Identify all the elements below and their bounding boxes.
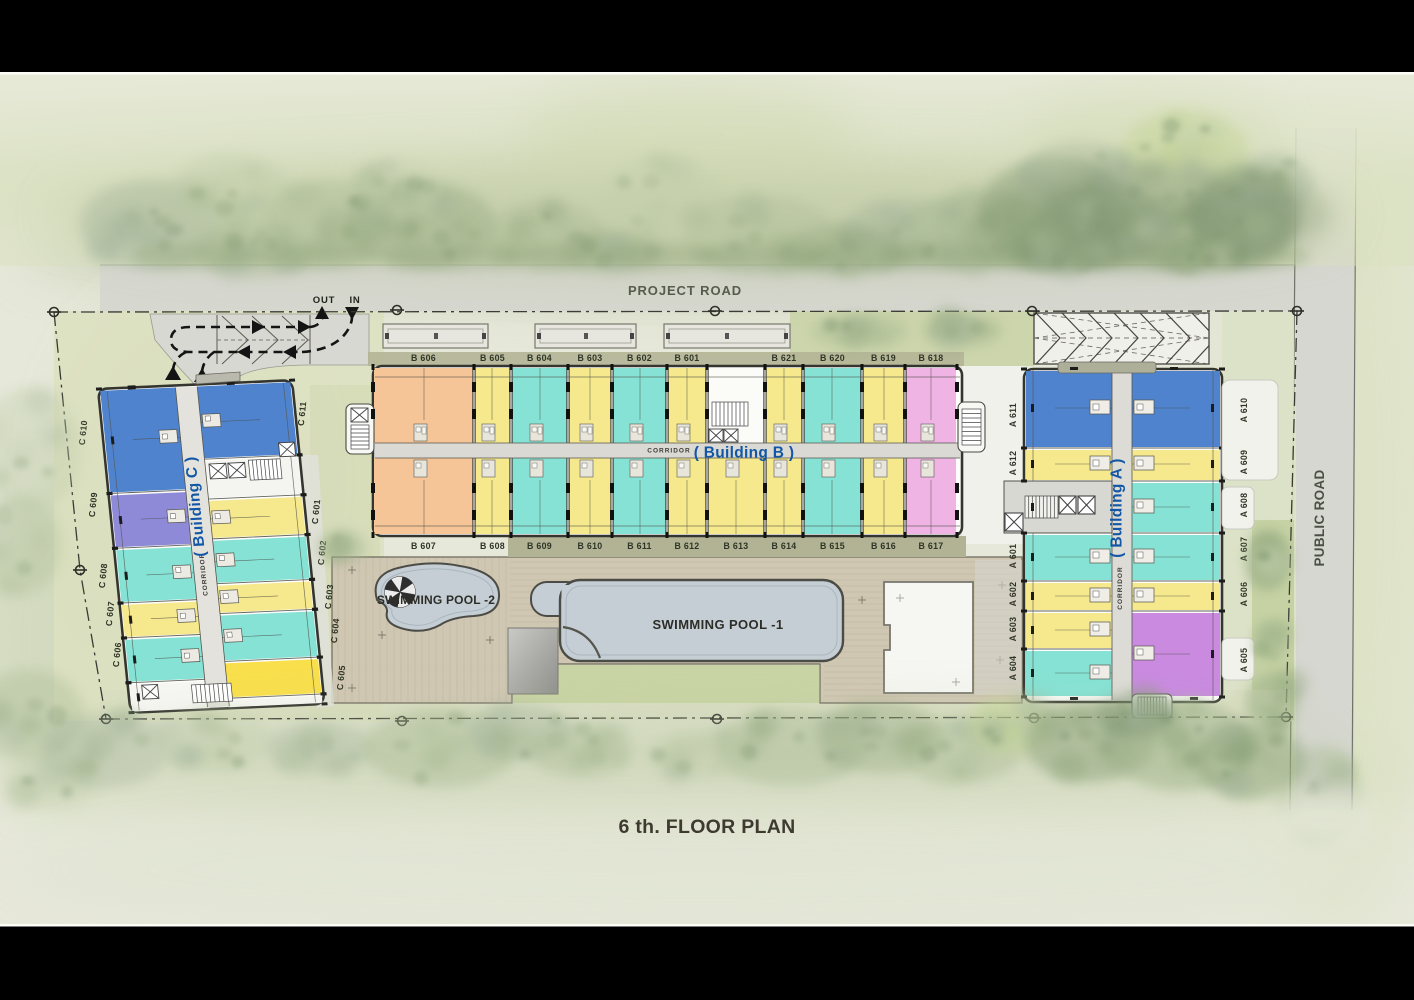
svg-text:B 621: B 621 bbox=[772, 353, 797, 363]
svg-text:B 619: B 619 bbox=[871, 353, 896, 363]
svg-text:B 615: B 615 bbox=[820, 541, 845, 551]
svg-text:A 612: A 612 bbox=[1008, 451, 1018, 476]
svg-text:B 602: B 602 bbox=[627, 353, 652, 363]
svg-text:A 601: A 601 bbox=[1008, 544, 1018, 569]
svg-text:B 616: B 616 bbox=[871, 541, 896, 551]
svg-text:B 609: B 609 bbox=[527, 541, 552, 551]
svg-text:A 611: A 611 bbox=[1008, 403, 1018, 427]
svg-text:A 609: A 609 bbox=[1239, 450, 1249, 475]
svg-text:IN: IN bbox=[349, 295, 360, 306]
svg-text:A 604: A 604 bbox=[1008, 656, 1018, 681]
svg-text:PROJECT ROAD: PROJECT ROAD bbox=[628, 283, 742, 298]
svg-text:( Building A ): ( Building A ) bbox=[1109, 458, 1126, 557]
svg-text:A 608: A 608 bbox=[1239, 493, 1249, 518]
svg-text:A 602: A 602 bbox=[1008, 582, 1018, 607]
svg-text:SWIMMING POOL -1: SWIMMING POOL -1 bbox=[652, 617, 783, 632]
svg-text:A 605: A 605 bbox=[1239, 648, 1249, 673]
svg-text:PUBLIC ROAD: PUBLIC ROAD bbox=[1312, 469, 1327, 566]
svg-text:B 603: B 603 bbox=[578, 353, 603, 363]
svg-text:B 617: B 617 bbox=[919, 541, 944, 551]
svg-text:A 603: A 603 bbox=[1008, 617, 1018, 642]
svg-text:CORRIDOR: CORRIDOR bbox=[1117, 566, 1124, 609]
svg-text:B 613: B 613 bbox=[724, 541, 749, 551]
svg-text:B 604: B 604 bbox=[527, 353, 552, 363]
svg-text:SWIMMING POOL -2: SWIMMING POOL -2 bbox=[377, 593, 495, 607]
svg-text:B 606: B 606 bbox=[411, 353, 436, 363]
svg-text:B 607: B 607 bbox=[411, 541, 436, 551]
svg-text:B 608: B 608 bbox=[480, 541, 505, 551]
svg-text:A 606: A 606 bbox=[1239, 582, 1249, 607]
svg-text:CORRIDOR: CORRIDOR bbox=[647, 448, 690, 455]
svg-text:B 601: B 601 bbox=[675, 353, 700, 363]
svg-text:( Building B ): ( Building B ) bbox=[694, 445, 795, 462]
svg-text:B 610: B 610 bbox=[578, 541, 603, 551]
svg-text:B 620: B 620 bbox=[820, 353, 845, 363]
svg-text:OUT: OUT bbox=[313, 295, 335, 306]
svg-text:A 610: A 610 bbox=[1239, 398, 1249, 423]
svg-text:B 605: B 605 bbox=[480, 353, 505, 363]
svg-text:6 th. FLOOR PLAN: 6 th. FLOOR PLAN bbox=[618, 816, 795, 838]
svg-text:B 614: B 614 bbox=[772, 541, 797, 551]
svg-text:B 612: B 612 bbox=[675, 541, 700, 551]
svg-text:B 611: B 611 bbox=[627, 541, 652, 551]
svg-text:B 618: B 618 bbox=[919, 353, 944, 363]
